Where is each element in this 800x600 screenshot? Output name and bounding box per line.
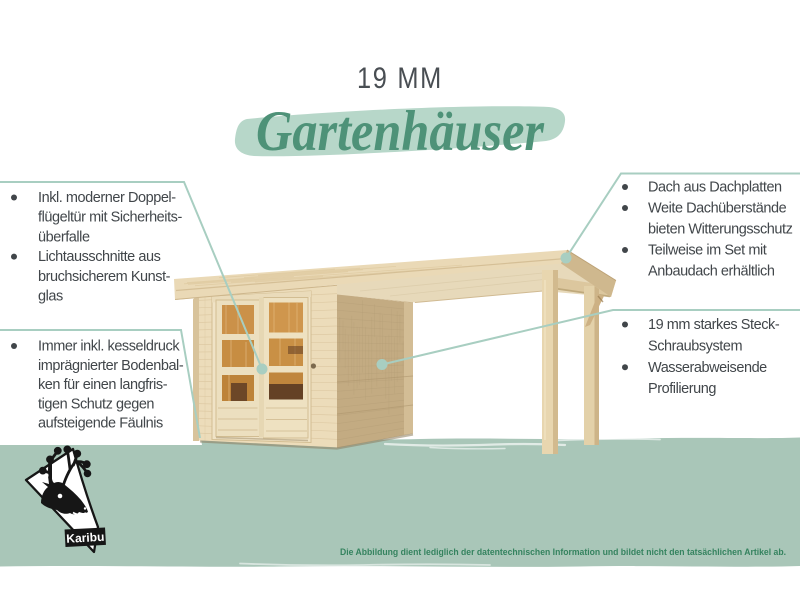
svg-text:Inkl. moderner Doppel-: Inkl. moderner Doppel- — [38, 190, 176, 206]
svg-text:aufsteigende Fäulnis: aufsteigende Fäulnis — [38, 416, 163, 432]
svg-text:19 MM: 19 MM — [357, 62, 443, 95]
svg-text:Profilierung: Profilierung — [648, 381, 716, 397]
svg-text:ken für einen langfris-: ken für einen langfris- — [38, 377, 168, 393]
svg-text:Die Abbildung dient lediglich: Die Abbildung dient lediglich der datent… — [340, 547, 786, 557]
svg-text:imprägnierter Bodenbal-: imprägnierter Bodenbal- — [38, 358, 184, 374]
svg-text:Lichtausschnitte aus: Lichtausschnitte aus — [38, 249, 161, 265]
svg-text:Anbaudach erhältlich: Anbaudach erhältlich — [648, 264, 775, 280]
svg-text:Weite Dachüberstände: Weite Dachüberstände — [648, 201, 787, 217]
svg-text:glas: glas — [38, 289, 63, 305]
svg-text:19 mm starkes Steck-: 19 mm starkes Steck- — [648, 317, 780, 333]
svg-text:Dach aus Dachplatten: Dach aus Dachplatten — [648, 180, 782, 196]
svg-text:bieten Witterungsschutz: bieten Witterungsschutz — [648, 222, 793, 238]
svg-text:Teilweise im Set mit: Teilweise im Set mit — [648, 243, 767, 259]
svg-text:bruchsicherem Kunst-: bruchsicherem Kunst- — [38, 269, 171, 285]
svg-text:tigen Schutz gegen: tigen Schutz gegen — [38, 396, 154, 412]
svg-text:Schraubsystem: Schraubsystem — [648, 338, 742, 354]
svg-text:flügeltür mit Sicherheits-: flügeltür mit Sicherheits- — [38, 210, 182, 226]
svg-text:überfalle: überfalle — [38, 229, 90, 245]
svg-text:Wasserabweisende: Wasserabweisende — [648, 360, 767, 376]
svg-text:Gartenhäuser: Gartenhäuser — [256, 100, 545, 163]
svg-text:Karibu: Karibu — [66, 530, 105, 546]
svg-text:Immer inkl. kesseldruck: Immer inkl. kesseldruck — [38, 339, 180, 355]
